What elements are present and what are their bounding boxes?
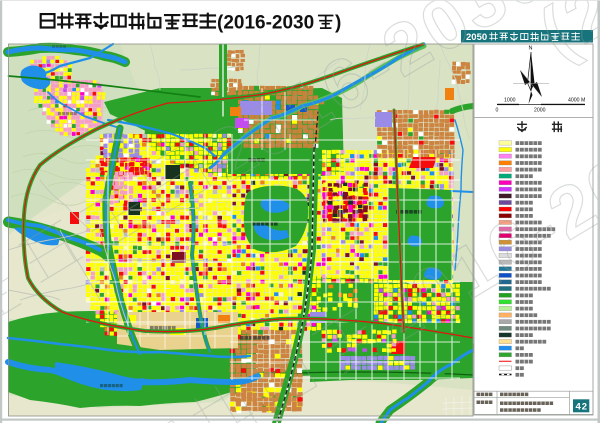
svg-text:42: 42 <box>576 402 589 413</box>
svg-text:4000 M: 4000 M <box>568 98 585 104</box>
svg-text:N: N <box>529 46 533 52</box>
svg-text:0: 0 <box>496 108 499 114</box>
svg-text:1000: 1000 <box>504 98 516 104</box>
svg-text:(2016-2030: (2016-2030 <box>217 13 314 34</box>
svg-text:): ) <box>335 13 341 34</box>
svg-text:2000: 2000 <box>534 108 546 114</box>
